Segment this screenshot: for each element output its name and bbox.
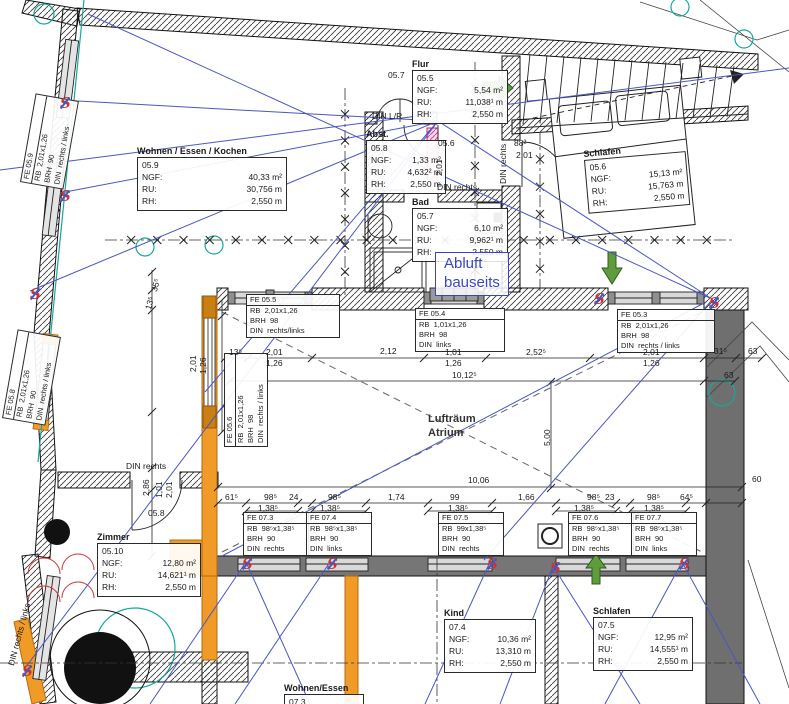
- dimension-label: 23: [605, 492, 614, 502]
- room-metric-row: NGF:1,33 m²: [371, 155, 441, 167]
- dimension-label: 1,38⁵: [448, 503, 468, 513]
- metric-value: 6,10 m²: [474, 223, 503, 235]
- room-name: Kind: [444, 608, 536, 618]
- room-metric-row: RU:11,038¹ m: [417, 97, 503, 109]
- dimension-label: 98⁵: [264, 492, 277, 502]
- room-label: Schlafen07.5NGF:12,95 m²RU:14,555¹ mRH:2…: [593, 606, 693, 671]
- room-label: Flur05.5NGF:5,54 m²RU:11,038¹ mRH:2,550 …: [412, 59, 508, 124]
- dimension-label: 61⁵: [225, 492, 238, 502]
- dimension-label: 2,01: [643, 347, 660, 357]
- room-name: Wohnen / Essen / Kochen: [137, 146, 287, 156]
- s-marker-icon: S: [327, 557, 338, 572]
- floor-drain: [538, 524, 562, 548]
- metric-label: RH:: [449, 658, 464, 670]
- s-marker-icon: S: [550, 561, 561, 576]
- window-spec-label: FE 07.7RB 98⁵x1,38⁵BRH 90DIN links: [631, 512, 697, 556]
- window-spec-line: FE 07.7: [632, 513, 696, 524]
- window-spec-line: DIN links: [307, 544, 371, 554]
- window-spec-line: BRH 98: [416, 330, 504, 340]
- window-spec-line: BRH 90: [632, 534, 696, 544]
- room-metric-row: RU:14,621¹ m: [102, 570, 196, 582]
- window-spec-line: BRH 90: [439, 534, 503, 544]
- dimension-label: 1,38⁵: [320, 503, 340, 513]
- metric-value: 2,550 m: [657, 656, 688, 668]
- metric-value: 13,310 m: [496, 646, 531, 658]
- room-metric-row: NGF:12,80 m²: [102, 558, 196, 570]
- window-spec-line: FE 05.6: [225, 354, 236, 446]
- metric-value: 14,621¹ m: [158, 570, 196, 582]
- window-spec-label: FE 07.4RB 98⁵x1,38⁵BRH 90DIN links: [306, 512, 372, 556]
- dimension-label: 1,26: [266, 358, 283, 368]
- room-number: 07.5: [598, 620, 688, 632]
- window-spec-label: FE 05.5RB 2,01x1,26BRH 98DIN rechts/link…: [246, 294, 340, 338]
- window-spec-line: FE 07.5: [439, 513, 503, 524]
- metric-label: NGF:: [417, 85, 437, 97]
- dimension-label: 05.7: [388, 70, 405, 80]
- window-spec-line: BRH 98: [618, 331, 714, 341]
- metric-label: NGF:: [590, 173, 611, 187]
- metric-value: 10,36 m²: [497, 634, 531, 646]
- dimension-label: 63: [748, 346, 757, 356]
- dimension-label: DIN rechts: [437, 182, 477, 192]
- room-metric-row: RH:2,550 m: [371, 179, 441, 191]
- room-id: 05.8: [371, 143, 388, 155]
- window-spec-line: DIN rechts: [244, 544, 308, 554]
- window-spec-line: RB 2,01x1,26: [247, 306, 339, 316]
- dimension-label: 05.6: [438, 138, 455, 148]
- dimension-label: 63: [724, 370, 733, 380]
- room-metric-row: RH:2,550 m: [598, 656, 688, 668]
- dimension-label: 31⁵: [714, 346, 727, 356]
- window-spec-line: RB 98⁵x1,38⁵: [244, 524, 308, 534]
- room-name: Abst.: [366, 129, 446, 139]
- room-info-box: 07.4NGF:10,36 m²RU:13,310 mRH:2,550 m: [444, 619, 536, 673]
- metric-label: RU:: [417, 97, 432, 109]
- metric-label: RH:: [598, 656, 613, 668]
- window-spec-label: FE 05.4RB 1,01x1,26BRH 98DIN links: [415, 308, 505, 352]
- dimension-label: 98⁵: [647, 492, 660, 502]
- dimension-label: 2,86: [141, 479, 151, 496]
- dimension-label: 1,01: [154, 481, 164, 498]
- dimension-label: 1,66: [518, 492, 535, 502]
- note-atrium: LufträumAtrium: [428, 413, 476, 441]
- dimension-label: 60: [752, 474, 761, 484]
- window-spec-line: BRH 98: [247, 316, 339, 326]
- metric-label: NGF:: [449, 634, 469, 646]
- room-label: Wohnen/Essen07.3: [284, 683, 364, 704]
- window-spec-label: FE 05.6RB 2,01x1,26BRH 98DIN rechts / li…: [224, 353, 268, 447]
- window-spec-line: BRH 90: [244, 534, 308, 544]
- metric-value: 11,038¹ m: [465, 97, 503, 109]
- window-spec-line: BRH 98: [246, 354, 256, 446]
- window-spec-line: FE 07.6: [569, 513, 633, 524]
- metric-label: RU:: [449, 646, 464, 658]
- metric-value: 9,962¹ m: [469, 235, 503, 247]
- note-line: Lufträum: [428, 413, 476, 427]
- metric-label: RU:: [417, 235, 432, 247]
- dimension-label: 1,01: [445, 347, 462, 357]
- s-marker-icon: S: [60, 96, 71, 111]
- room-name: Wohnen/Essen: [284, 683, 364, 693]
- metric-label: NGF:: [142, 172, 162, 184]
- metric-value: 14,555¹ m: [650, 644, 688, 656]
- room-name: Bad: [412, 197, 508, 207]
- window-spec-line: RB 99x1,38⁵: [439, 524, 503, 534]
- room-metric-row: RU:14,555¹ m: [598, 644, 688, 656]
- dimension-label: 5,00: [542, 429, 552, 446]
- room-name: Schlafen: [593, 606, 693, 616]
- room-info-box: 05.9NGF:40,33 m²RU:30,756 mRH:2,550 m: [137, 157, 287, 211]
- dimension-label: 10,12⁵: [452, 370, 477, 380]
- note-line: Abluft: [444, 255, 500, 274]
- window-spec-line: DIN links: [632, 544, 696, 554]
- room-number: 05.8: [371, 143, 441, 155]
- room-id: 05.5: [417, 73, 434, 85]
- dimension-label: 98⁵: [328, 492, 341, 502]
- window-spec-line: RB 1,01x1,26: [416, 320, 504, 330]
- room-metric-row: NGF:40,33 m²: [142, 172, 282, 184]
- metric-value: 12,95 m²: [654, 632, 688, 644]
- room-number: 07.3: [289, 697, 359, 704]
- room-number: 07.4: [449, 622, 531, 634]
- s-marker-icon: S: [30, 287, 41, 302]
- room-metric-row: RU:4,632² m: [371, 167, 441, 179]
- window-spec-label: FE 07.6RB 98⁵x1,38⁵BRH 90DIN rechts: [568, 512, 634, 556]
- metric-label: RH:: [417, 109, 432, 121]
- orange-walls: [14, 296, 358, 704]
- dimension-label: 2,01: [516, 150, 533, 160]
- window-spec-line: FE 07.3: [244, 513, 308, 524]
- window-spec-line: RB 98⁵x1,38⁵: [307, 524, 371, 534]
- metric-value: 12,80 m²: [162, 558, 196, 570]
- window-spec-line: DIN rechts: [439, 544, 503, 554]
- metric-label: RH:: [592, 197, 608, 210]
- dimension-label: 13⁵: [229, 347, 242, 357]
- s-marker-icon: S: [487, 557, 498, 572]
- room-number: 05.10: [102, 546, 196, 558]
- dimension-label: 64⁵: [680, 492, 693, 502]
- dimension-label: 1,38⁵: [574, 503, 594, 513]
- window-spec-line: RB 2,01x1,26: [618, 321, 714, 331]
- floor-plan: Wohnen / Essen / Kochen05.9NGF:40,33 m²R…: [0, 0, 789, 704]
- metric-label: RU:: [102, 570, 117, 582]
- room-name: Flur: [412, 59, 508, 69]
- window-spec-line: FE 05.4: [416, 309, 504, 320]
- room-metric-row: RH:2,550 m: [417, 109, 503, 121]
- room-number: 05.5: [417, 73, 503, 85]
- room-metric-row: NGF:10,36 m²: [449, 634, 531, 646]
- dimension-label: 1,26: [198, 357, 208, 374]
- dimension-label: 1,38⁵: [644, 503, 664, 513]
- metric-value: 2,550 m: [251, 196, 282, 208]
- metric-label: RU:: [371, 167, 386, 179]
- dimension-label: 88²: [514, 138, 526, 148]
- dimension-label: 10,06: [468, 475, 489, 485]
- window-spec-line: DIN rechts / links: [256, 354, 266, 446]
- dimension-label: 1,26: [445, 358, 462, 368]
- dimension-label: 1,74: [388, 492, 405, 502]
- room-label: Kind07.4NGF:10,36 m²RU:13,310 mRH:2,550 …: [444, 608, 536, 673]
- room-name: Zimmer: [97, 532, 201, 542]
- dimension-label: DIN L/R: [372, 111, 402, 121]
- metric-label: RH:: [142, 196, 157, 208]
- dimension-label: 1,26: [643, 358, 660, 368]
- room-metric-row: RH:2,550 m: [449, 658, 531, 670]
- metric-value: 2,550 m: [500, 658, 531, 670]
- room-metric-row: NGF:6,10 m²: [417, 223, 503, 235]
- window-spec-line: RB 98⁵x1,38⁵: [569, 524, 633, 534]
- window-spec-line: DIN rechts / links: [618, 341, 714, 351]
- window-spec-line: RB 2,01x1,26: [236, 354, 246, 446]
- metric-value: 2,550 m: [472, 109, 503, 121]
- dimension-label: 05.8: [148, 508, 165, 518]
- window-spec-line: DIN rechts/links: [247, 326, 339, 336]
- note-abluft: Abluftbauseits: [435, 252, 509, 296]
- metric-value: 2,550 m: [165, 582, 196, 594]
- dimension-label: 1,38⁵: [258, 503, 278, 513]
- dimension-label: 2,01: [266, 347, 283, 357]
- note-line: Atrium: [428, 427, 476, 441]
- metric-label: RH:: [102, 582, 117, 594]
- room-number: 05.7: [417, 211, 503, 223]
- room-metric-row: NGF:5,54 m²: [417, 85, 503, 97]
- metric-label: RU:: [598, 644, 613, 656]
- room-metric-row: RU:30,756 m: [142, 184, 282, 196]
- s-marker-icon: S: [679, 557, 690, 572]
- room-metric-row: NGF:12,95 m²: [598, 632, 688, 644]
- dimension-label: DIN rechts: [126, 461, 166, 471]
- room-label: Zimmer05.10NGF:12,80 m²RU:14,621¹ mRH:2,…: [97, 532, 201, 597]
- room-number: 05.9: [142, 160, 282, 172]
- room-info-box: 05.10NGF:12,80 m²RU:14,621¹ mRH:2,550 m: [97, 543, 201, 597]
- window-spec-label: FE 05.3RB 2,01x1,26BRH 98DIN rechts / li…: [617, 309, 715, 353]
- metric-label: RU:: [142, 184, 157, 196]
- window-spec-line: RB 98⁵x1,38⁵: [632, 524, 696, 534]
- room-info-box: 07.3: [284, 694, 364, 704]
- window-spec-line: FE 05.3: [618, 310, 714, 321]
- dimension-label: 2,01: [434, 159, 444, 176]
- metric-label: NGF:: [371, 155, 391, 167]
- metric-label: NGF:: [417, 223, 437, 235]
- window-spec-line: FE 05.5: [247, 295, 339, 306]
- metric-value: 5,54 m²: [474, 85, 503, 97]
- room-info-box: 07.5NGF:12,95 m²RU:14,555¹ mRH:2,550 m: [593, 617, 693, 671]
- s-marker-icon: S: [242, 557, 253, 572]
- room-id: 05.7: [417, 211, 434, 223]
- room-metric-row: RU:13,310 m: [449, 646, 531, 658]
- room-id: 07.4: [449, 622, 466, 634]
- s-marker-icon: S: [22, 664, 33, 679]
- window-spec-line: DIN rechts: [569, 544, 633, 554]
- dimension-label: 2,52⁵: [526, 347, 546, 357]
- window-spec-line: FE 07.4: [307, 513, 371, 524]
- metric-label: NGF:: [598, 632, 618, 644]
- window-spec-label: FE 07.3RB 98⁵x1,38⁵BRH 90DIN rechts: [243, 512, 309, 556]
- room-metric-row: RU:9,962¹ m: [417, 235, 503, 247]
- room-id: 07.3: [289, 697, 306, 704]
- room-id: 07.5: [598, 620, 615, 632]
- dimension-label: 2,01: [164, 481, 174, 498]
- room-label: Schlafen05.6NGF:15,13 m²RU:15,763 mRH:2,…: [583, 140, 690, 213]
- room-metric-row: RH:2,550 m: [142, 196, 282, 208]
- room-label: Wohnen / Essen / Kochen05.9NGF:40,33 m²R…: [137, 146, 287, 211]
- s-marker-icon: S: [709, 296, 720, 311]
- note-line: bauseits: [444, 274, 500, 293]
- window-spec-label: FE 07.5RB 99x1,38⁵BRH 90DIN rechts: [438, 512, 504, 556]
- window-spec-line: BRH 90: [569, 534, 633, 544]
- dimension-label: 99: [450, 492, 459, 502]
- room-id: 05.9: [142, 160, 159, 172]
- s-marker-icon: S: [60, 189, 71, 204]
- dimension-label: 98⁵: [587, 492, 600, 502]
- metric-label: RH:: [417, 247, 432, 259]
- metric-label: RH:: [371, 179, 386, 191]
- dimension-label: 2,12: [380, 346, 397, 356]
- dimension-label: 2,01: [188, 355, 198, 372]
- room-metric-row: RH:2,550 m: [102, 582, 196, 594]
- metric-value: 30,756 m: [247, 184, 282, 196]
- metric-value: 40,33 m²: [248, 172, 282, 184]
- dimension-label: 24: [289, 492, 298, 502]
- room-info-box: 05.6NGF:15,13 m²RU:15,763 mRH:2,550 m: [584, 151, 690, 213]
- room-id: 05.10: [102, 546, 123, 558]
- metric-label: NGF:: [102, 558, 122, 570]
- room-info-box: 05.5NGF:5,54 m²RU:11,038¹ mRH:2,550 m: [412, 70, 508, 124]
- dimension-label: DIN rechts: [498, 144, 508, 184]
- window-spec-line: BRH 90: [307, 534, 371, 544]
- s-marker-icon: S: [594, 292, 605, 307]
- metric-value: 2,550 m: [653, 190, 685, 205]
